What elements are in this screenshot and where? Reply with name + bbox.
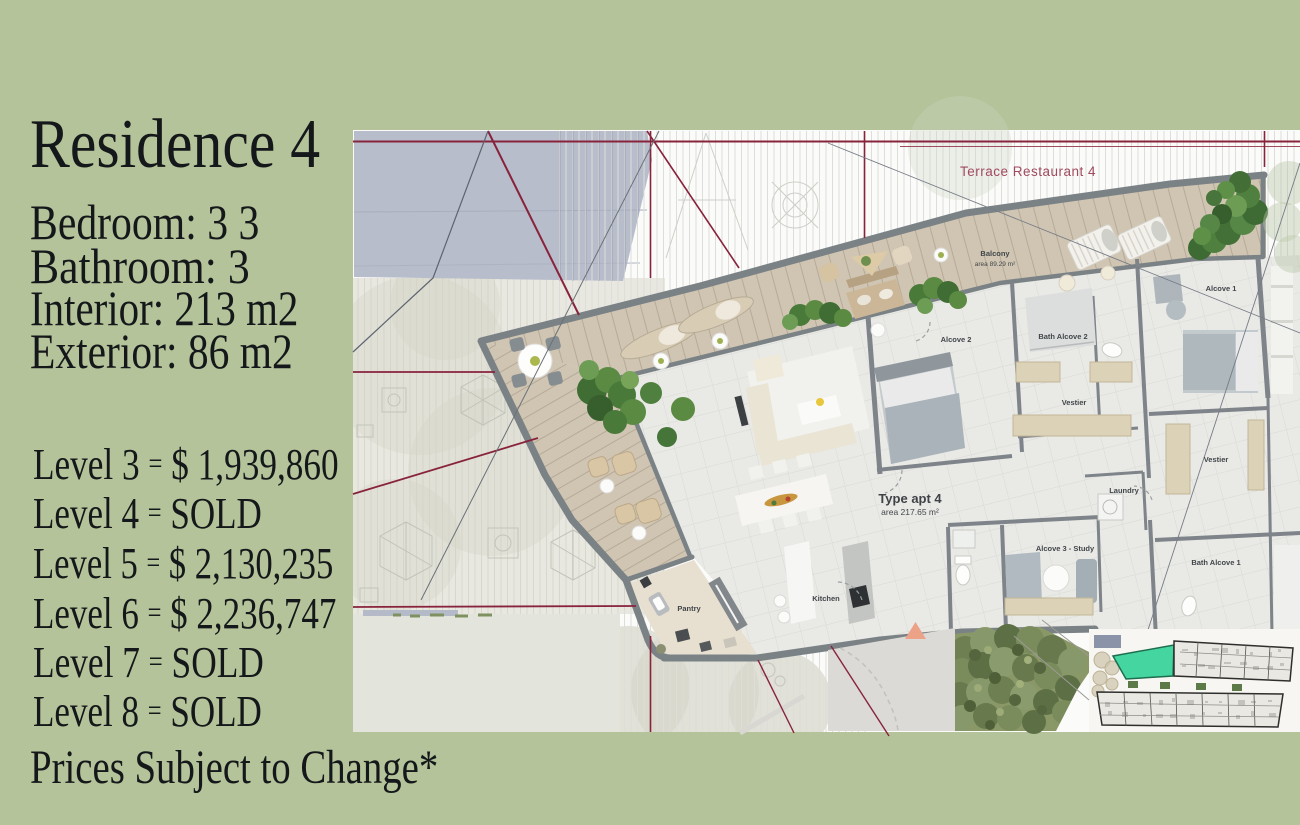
svg-text:Pantry: Pantry [677, 604, 701, 613]
svg-text:Bath Alcove 2: Bath Alcove 2 [1038, 332, 1087, 341]
svg-text:area 217.65 m²: area 217.65 m² [881, 507, 939, 517]
svg-text:Vestier: Vestier [1062, 398, 1087, 407]
svg-text:area 89.29 m²: area 89.29 m² [975, 261, 1016, 268]
svg-text:Type apt 4: Type apt 4 [878, 491, 942, 506]
svg-text:Balcony: Balcony [980, 249, 1010, 258]
svg-text:Alcove 3 - Study: Alcove 3 - Study [1036, 544, 1095, 553]
svg-text:Alcove 1: Alcove 1 [1206, 284, 1237, 293]
svg-text:Laundry: Laundry [1109, 486, 1139, 495]
svg-text:Terrace Restaurant 4: Terrace Restaurant 4 [960, 164, 1096, 179]
svg-text:Alcove 2: Alcove 2 [941, 335, 972, 344]
svg-text:Kitchen: Kitchen [812, 594, 840, 603]
svg-text:Vestier: Vestier [1204, 455, 1229, 464]
svg-text:Bath Alcove 1: Bath Alcove 1 [1191, 558, 1240, 567]
